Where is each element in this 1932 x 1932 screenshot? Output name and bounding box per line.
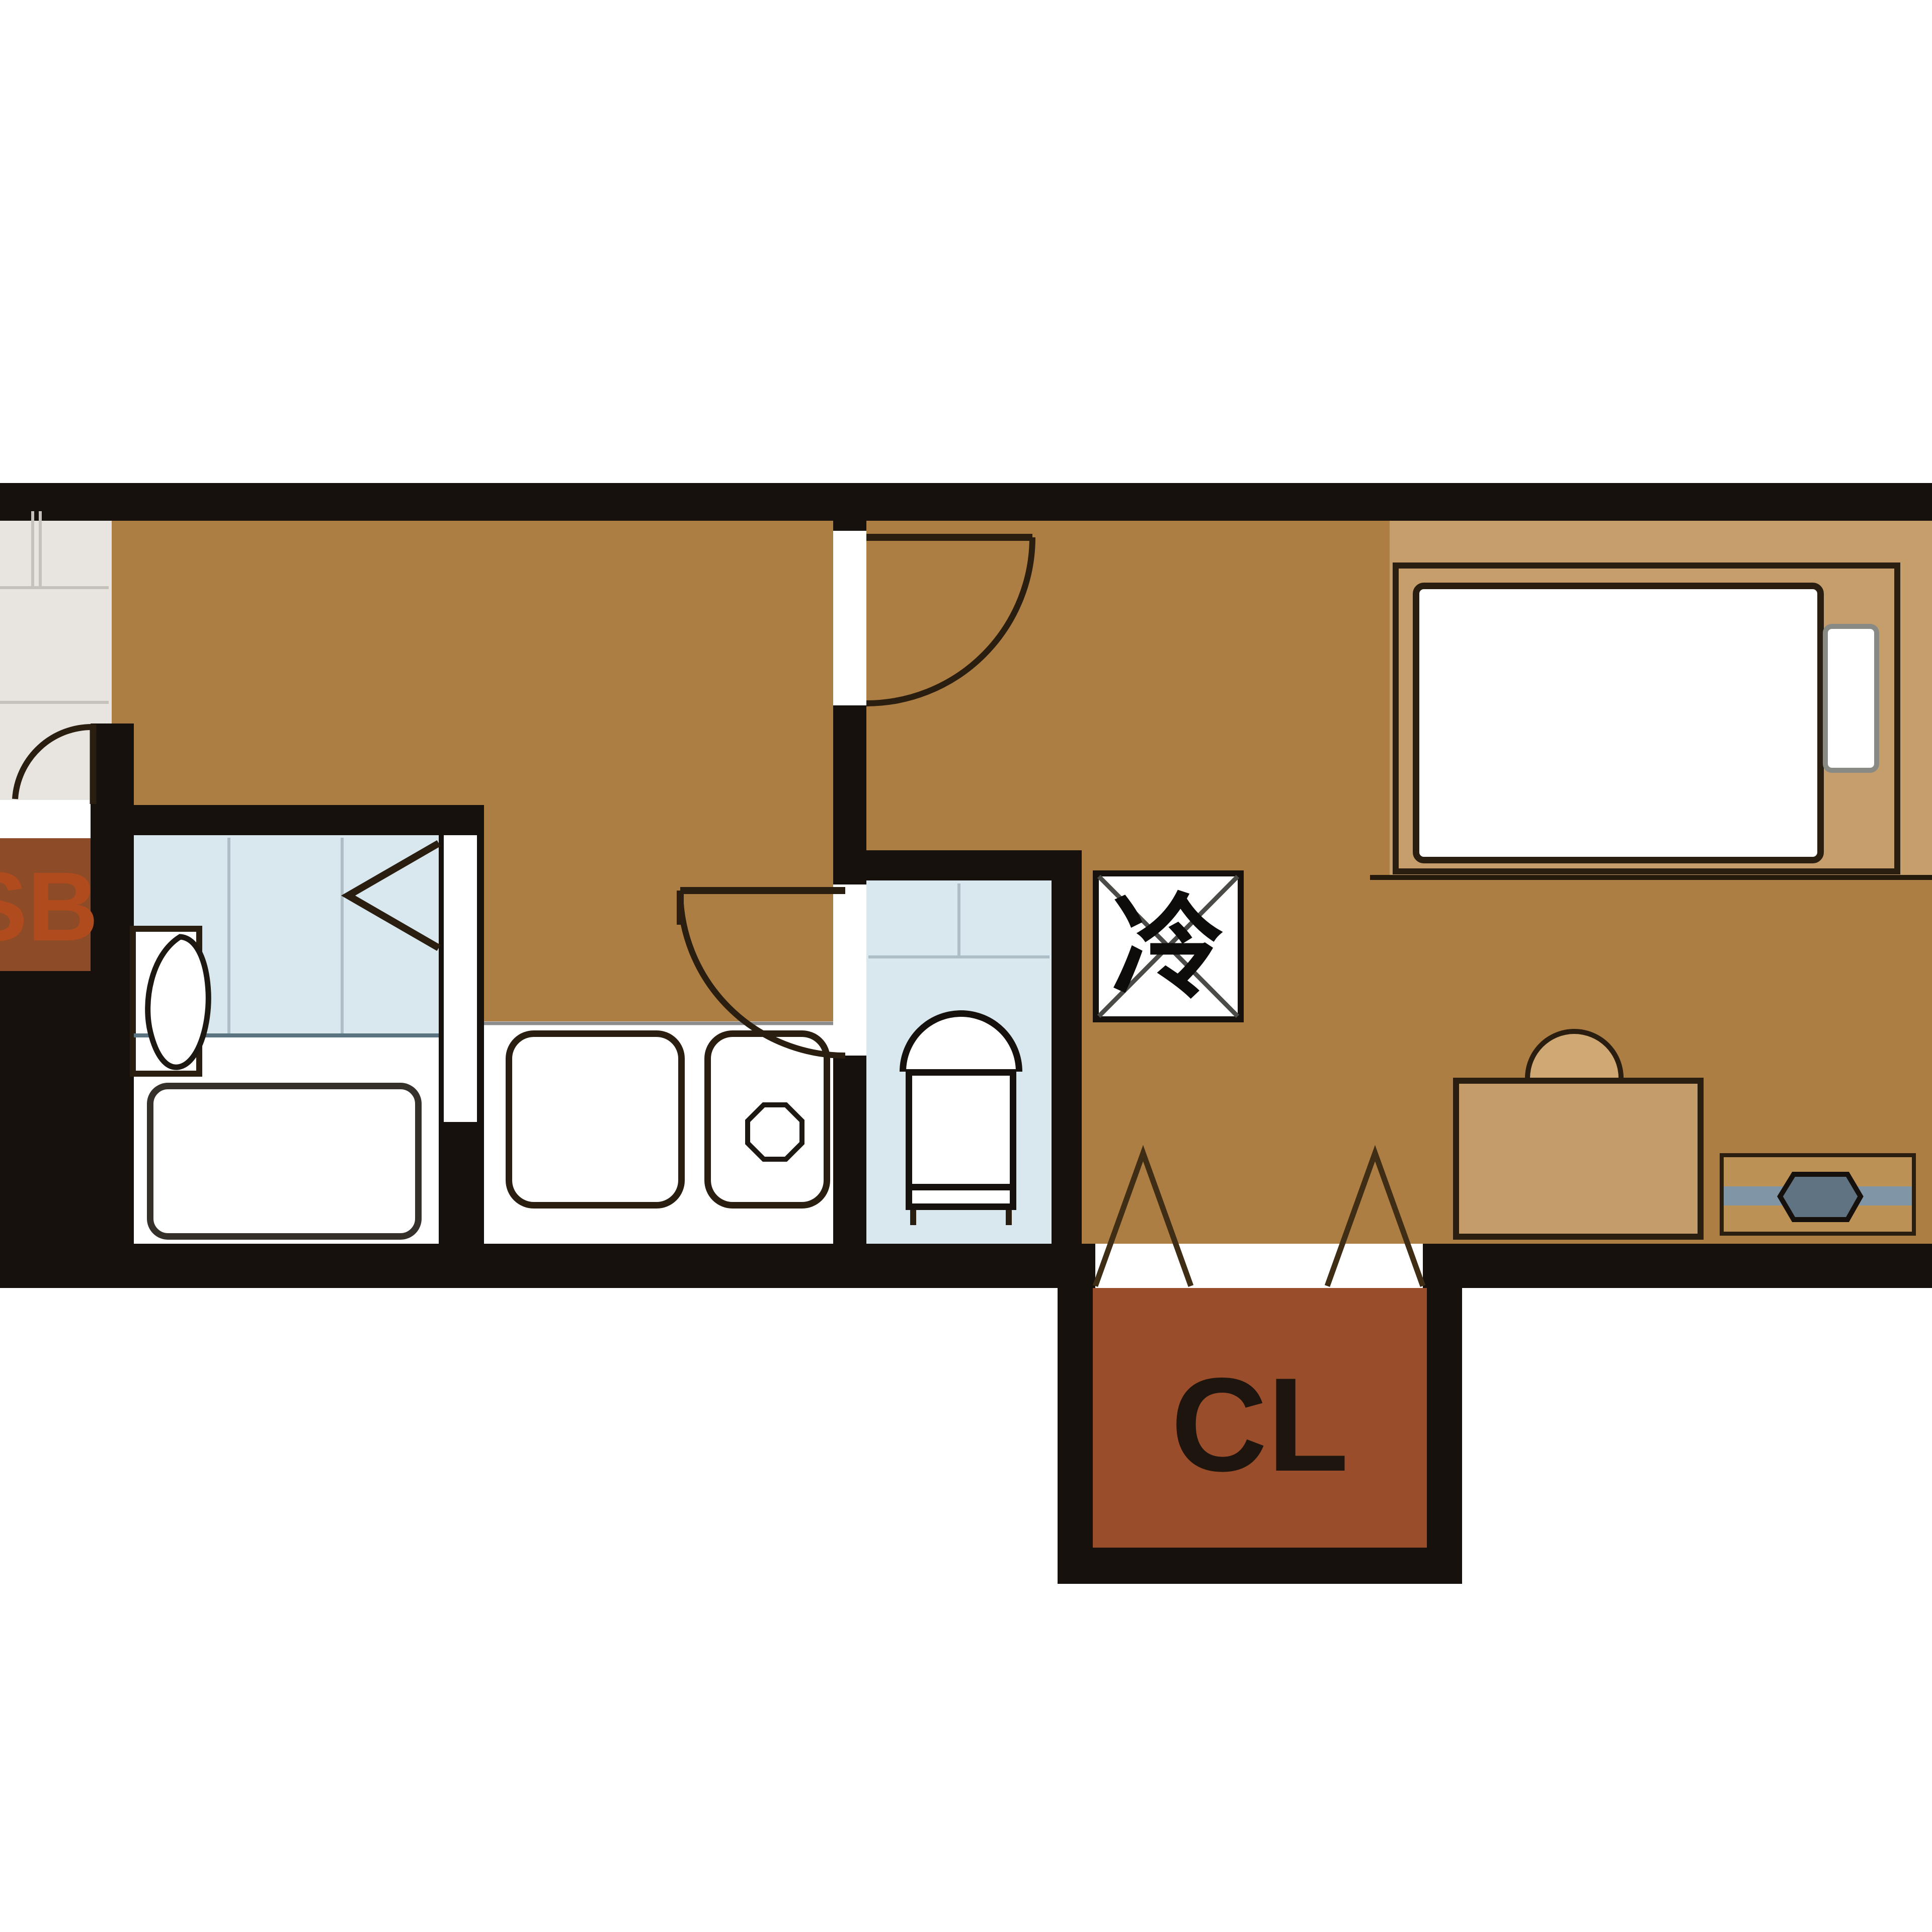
shoe-box-label: SB: [0, 858, 103, 956]
bedroom-door-swing-icon: [866, 537, 1032, 703]
plan-stroke-layer: [0, 0, 1932, 1932]
toilet-feet: [913, 1210, 1009, 1225]
entrance-tile-lines: [0, 511, 109, 702]
entrance-door-swing-icon: [15, 725, 93, 804]
closet-fold-marks-icon: [1095, 1153, 1423, 1286]
refrigerator-label: 冷: [1105, 892, 1231, 1005]
closet-label: CL: [1159, 1358, 1360, 1492]
bathroom-tile-lines: [229, 838, 342, 1034]
toilet-tile-lines: [868, 883, 1050, 957]
folding-door-icon: [348, 843, 439, 948]
floor-plan: SB CL 冷: [0, 0, 1932, 1932]
tv-icon: [1780, 1174, 1861, 1220]
toilet-door-swing-icon: [680, 891, 845, 1056]
sink-drain-icon: [748, 1105, 802, 1159]
washbasin-bowl-icon: [148, 937, 209, 1067]
